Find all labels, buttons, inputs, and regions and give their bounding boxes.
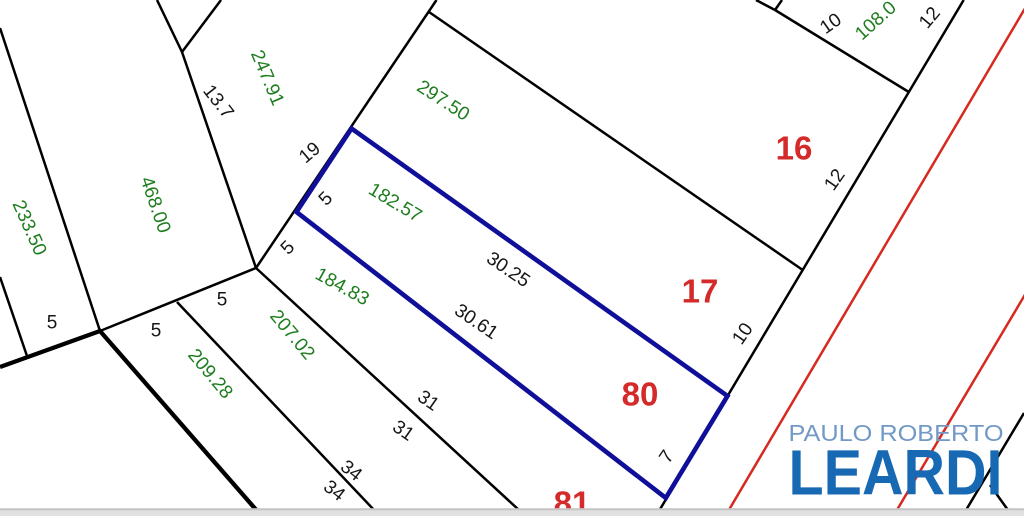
svg-text:5: 5 (47, 313, 58, 334)
svg-text:LEARDI: LEARDI (789, 437, 1003, 509)
svg-text:5: 5 (151, 321, 162, 342)
svg-text:80: 80 (622, 376, 659, 413)
svg-text:17: 17 (682, 273, 719, 310)
svg-text:5: 5 (217, 290, 228, 311)
svg-text:16: 16 (776, 130, 813, 167)
